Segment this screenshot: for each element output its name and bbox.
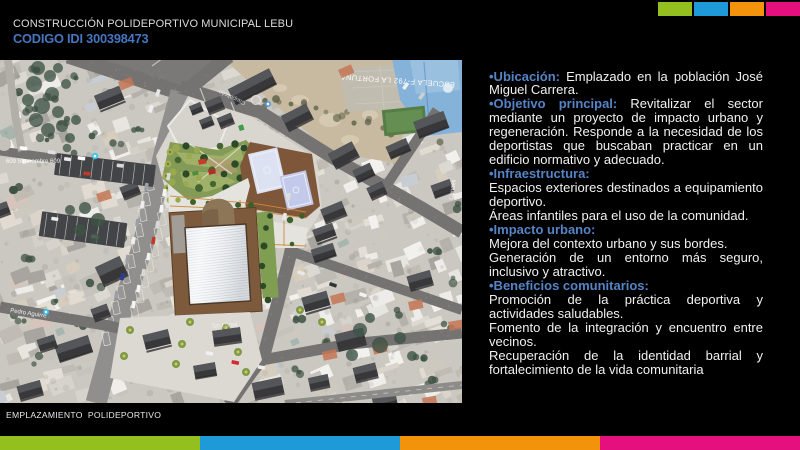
svg-text:609 Sin nombre 609: 609 Sin nombre 609 — [6, 159, 61, 165]
